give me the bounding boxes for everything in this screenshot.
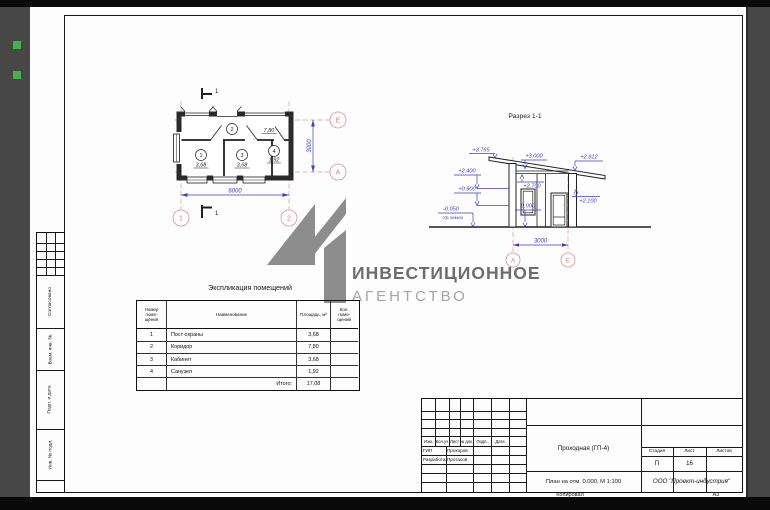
floor-plan: 1 2 3 4 3,68 7,80 3,68 1,92 6000 3000 xyxy=(165,85,380,235)
cell-count xyxy=(331,329,358,341)
sig-role: ГИП xyxy=(423,446,446,455)
cut-mark-label: 1 xyxy=(215,211,219,217)
sheet-label: Лист xyxy=(673,447,706,456)
cad-viewer: { "watermark": { "line1": "ИНВЕСТИЦИОННО… xyxy=(0,0,770,510)
sig-name: Прохоров xyxy=(447,446,473,455)
section-view: Разрез 1-1 +3.765 +3.000 +2.912 +2.400 xyxy=(425,105,655,275)
axis-label: 1 xyxy=(179,216,183,223)
room-number: 2 xyxy=(230,127,233,133)
axis-label: А xyxy=(336,170,341,177)
elevation-value: +0.900 xyxy=(458,187,476,193)
col-izm: Изм. xyxy=(422,436,435,446)
cut-mark-label: 1 xyxy=(215,89,219,95)
elevation-value: 0.000 xyxy=(521,204,536,210)
col-koluch: Кол.уч xyxy=(435,436,449,446)
section-dimension: 3000 xyxy=(513,239,568,247)
sig-name: Протасов xyxy=(447,455,473,464)
stage-label: Стадия xyxy=(641,447,673,456)
dim-depth: 3000 xyxy=(307,139,313,153)
stamp-inventory: Инв. № подл. xyxy=(37,429,64,480)
cell-name: Кабинет xyxy=(167,354,297,366)
room-area: 1,92 xyxy=(269,158,280,164)
dim-width: 6000 xyxy=(228,189,242,195)
col-header-num: Номер поме- щения xyxy=(137,301,167,329)
viewer-top-bar xyxy=(0,0,770,7)
col-podp: Подп. xyxy=(473,436,491,446)
col-header-count: Кол. поме- щений xyxy=(331,301,358,329)
total-label: Итого: xyxy=(167,378,297,389)
col-header-area: Площадь, м² xyxy=(297,301,331,329)
title-block: Изм. Кол.уч Лист № док. Подп. Дата ГИП П… xyxy=(421,398,743,493)
stamp-sign-date: Подп. и дата xyxy=(37,370,64,429)
axis-label: А xyxy=(511,257,516,264)
cell-area: 3,68 xyxy=(297,329,331,341)
drawing-title: План на отм. 0.000, М 1:100 xyxy=(526,471,641,492)
elevation-value: +3.765 xyxy=(472,148,490,154)
viewer-bottom-bar xyxy=(0,497,770,510)
elevation-value: +2.100 xyxy=(579,199,597,205)
elevation-value: +2.700 xyxy=(523,184,541,190)
ground-note: Ур.земли xyxy=(443,215,464,221)
project-name: Проходная (ГП-4) xyxy=(526,425,641,471)
elevation-value: -0.050 xyxy=(443,207,460,213)
room-number: 3 xyxy=(240,153,243,159)
col-list: Лист xyxy=(449,436,460,446)
room-area: 7,80 xyxy=(264,128,276,134)
stamp-agreed: Согласовано xyxy=(37,275,64,328)
selection-grip-icon[interactable] xyxy=(13,71,21,79)
cell-name: Пост охраны xyxy=(167,329,297,341)
cell-area: 7,80 xyxy=(297,342,331,354)
room-area: 3,68 xyxy=(237,163,249,169)
company-name: ООО "Проект-индустрия" xyxy=(641,471,742,492)
axis-label: Е xyxy=(566,257,571,264)
axis-label: 2 xyxy=(287,216,291,223)
cell-count xyxy=(331,342,358,354)
room-area: 3,68 xyxy=(196,163,208,169)
explication-table: Номер поме- щения Наименование Площадь, … xyxy=(136,300,360,391)
cell-count xyxy=(331,354,358,366)
cell-num xyxy=(137,378,167,389)
section-title: Разрез 1-1 xyxy=(508,113,542,120)
col-header-name: Наименование xyxy=(167,301,297,329)
room-number: 1 xyxy=(199,153,202,159)
sheet-value: 16 xyxy=(673,456,706,471)
selection-grip-icon[interactable] xyxy=(13,41,21,49)
section-axis-bubbles: А Е xyxy=(506,253,575,267)
sheets-label: Листов xyxy=(706,447,742,456)
sheets-value xyxy=(706,456,742,471)
cell-area: 1,92 xyxy=(297,366,331,378)
col-data: Дата xyxy=(491,436,509,446)
side-stamp-strip: Согласовано Взам. инв. № Подп. и дата Ин… xyxy=(36,232,65,493)
elevation-value: +3.000 xyxy=(525,154,543,160)
cell-num: 4 xyxy=(137,366,167,378)
stamp-replace-inv: Взам. инв. № xyxy=(37,328,64,370)
total-value: 17,08 xyxy=(297,378,331,389)
dim-width: 3000 xyxy=(534,239,548,245)
cell-num: 2 xyxy=(137,342,167,354)
cell-count xyxy=(331,378,358,389)
elevation-value: +2.912 xyxy=(580,155,598,161)
cell-num: 3 xyxy=(137,354,167,366)
plan-walls xyxy=(174,107,292,184)
elevation-value: +2.400 xyxy=(458,169,476,175)
col-ndok: № док. xyxy=(460,436,473,446)
cell-count xyxy=(331,366,358,378)
explication-title: Экспликация помещений xyxy=(180,283,320,292)
room-number: 4 xyxy=(272,149,275,155)
stage-value: П xyxy=(641,456,673,471)
sig-role: Разработал xyxy=(423,455,446,464)
cell-name: Коридор xyxy=(167,342,297,354)
cell-name: Санузел xyxy=(167,366,297,378)
drawing-sheet: ИНВЕСТИЦИОННОЕ АГЕНТСТВО xyxy=(30,7,748,497)
axis-label: Е xyxy=(336,118,341,125)
cell-num: 1 xyxy=(137,329,167,341)
cell-area: 3,68 xyxy=(297,354,331,366)
